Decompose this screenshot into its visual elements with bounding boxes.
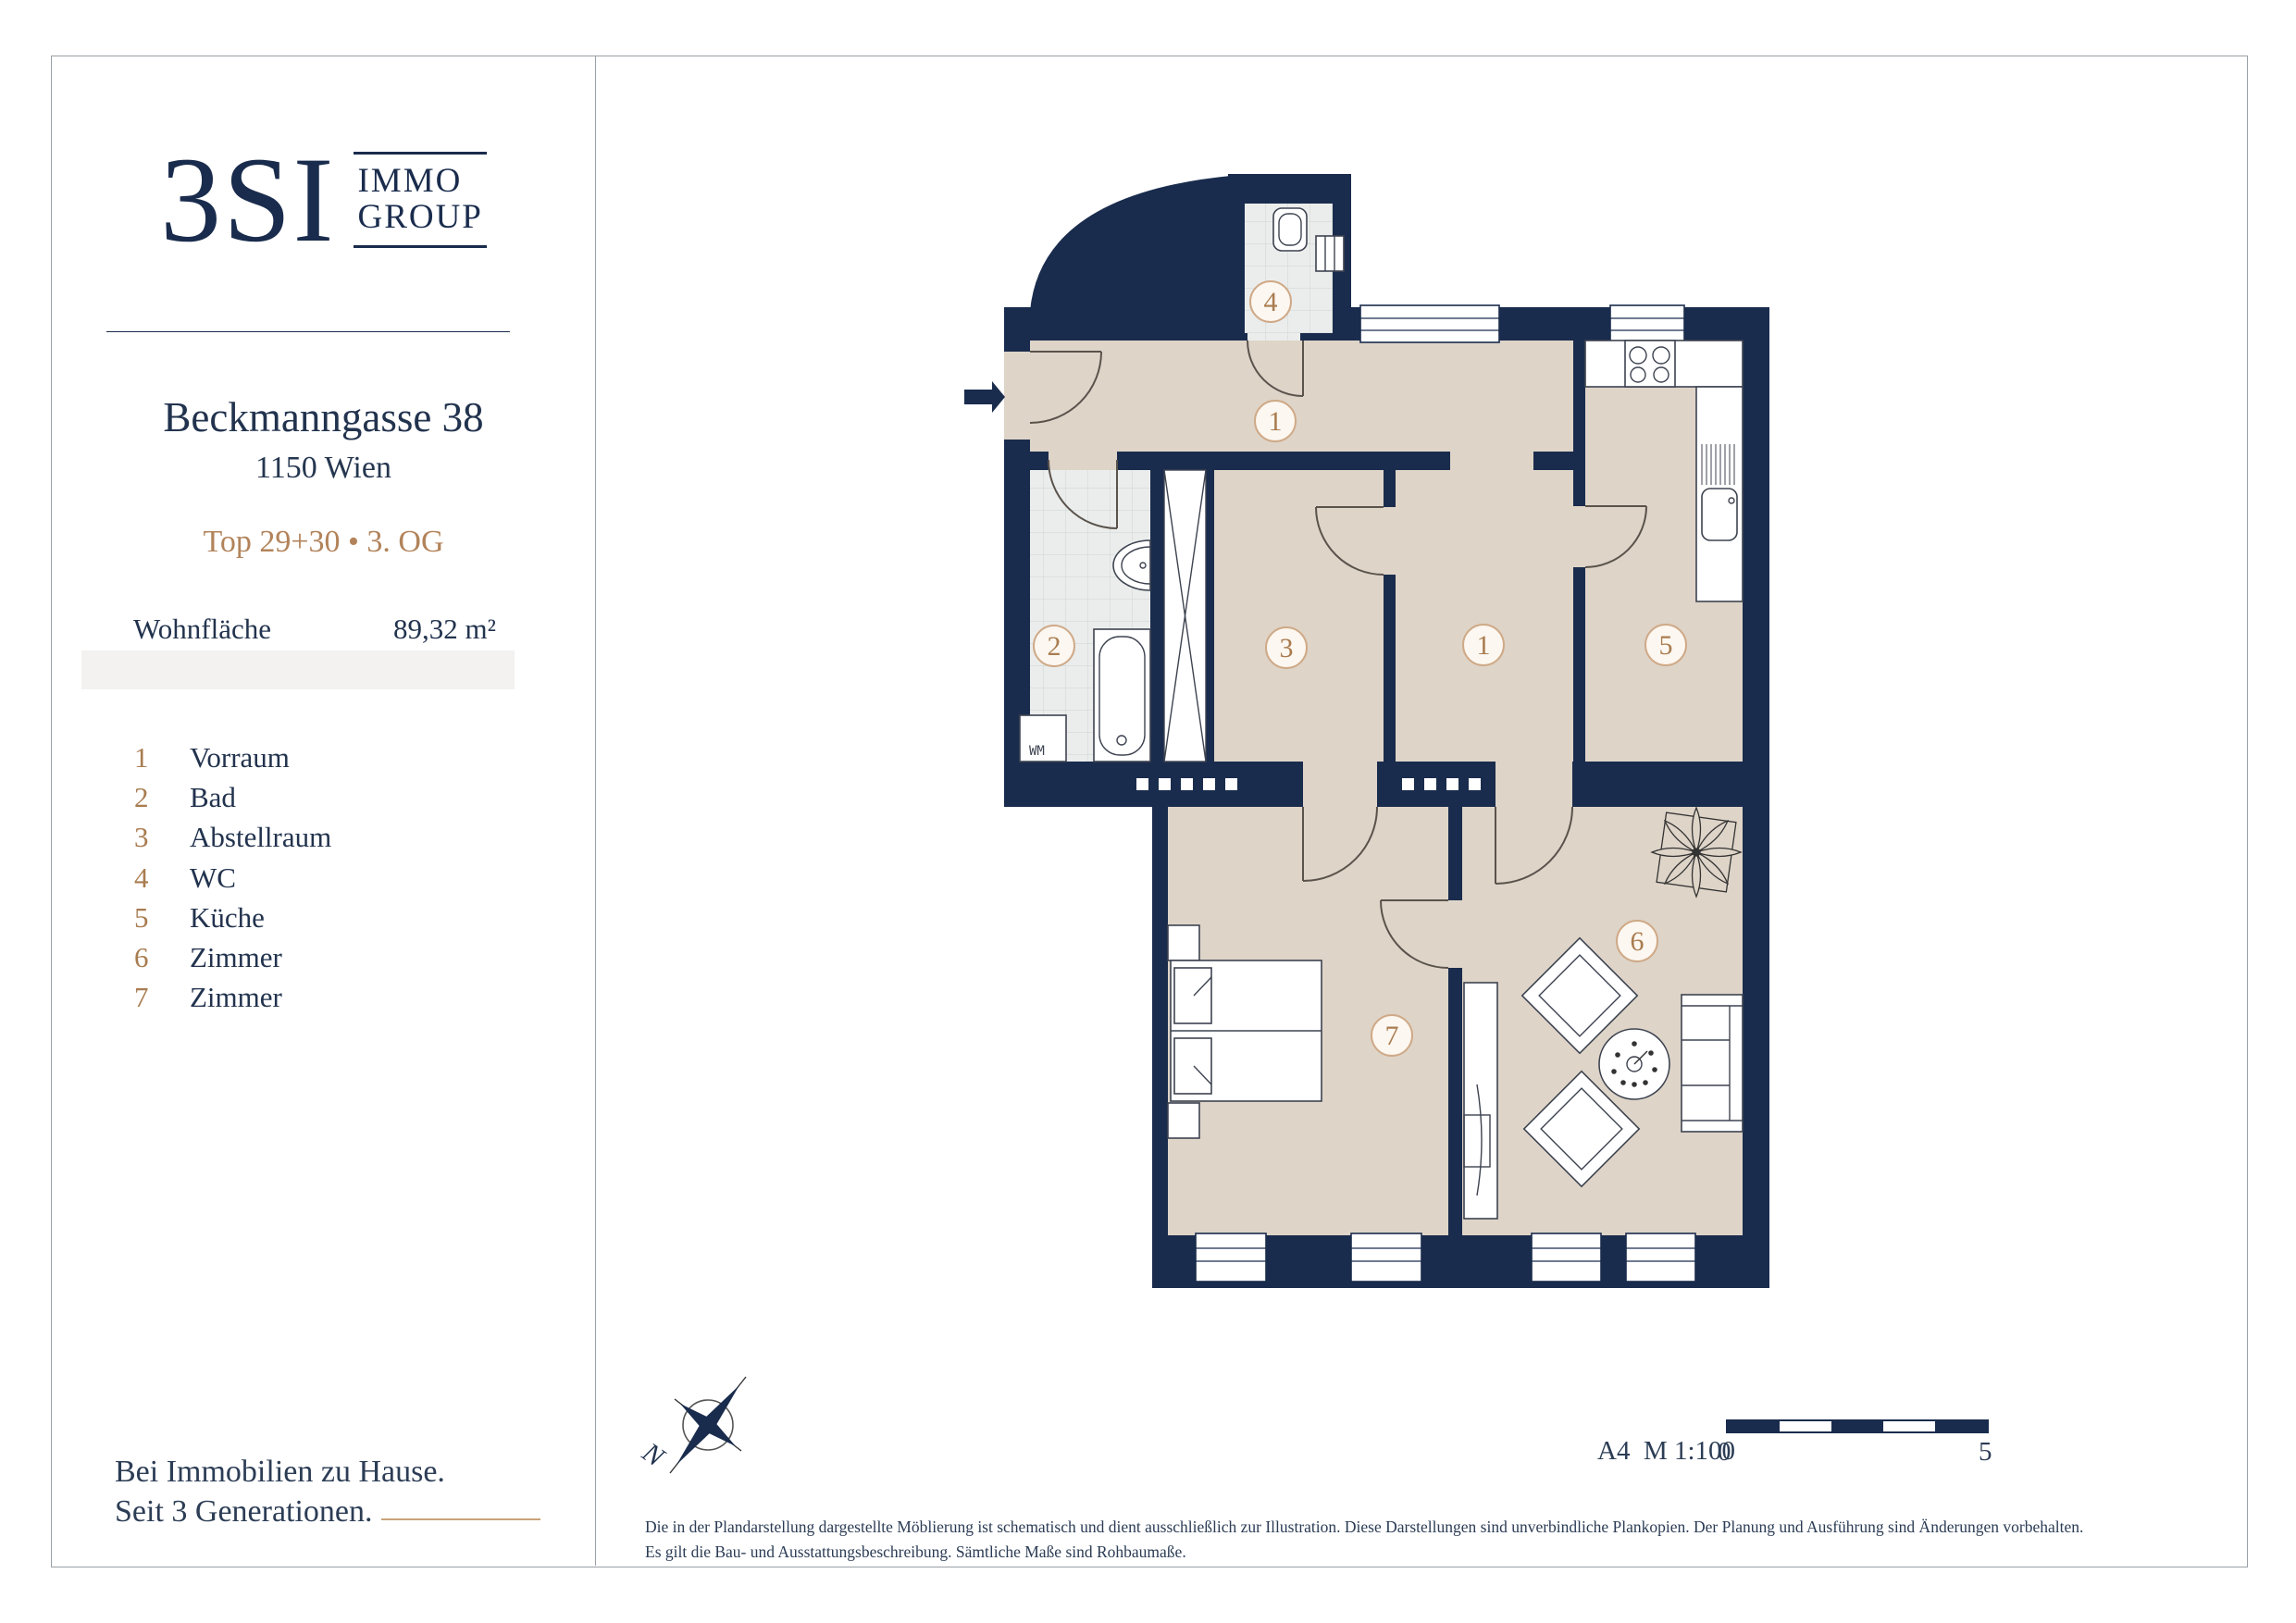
plant: [1652, 808, 1741, 897]
legend-label: Bad: [190, 781, 236, 814]
legend-row-zimmer7: 7 Zimmer: [134, 978, 331, 1018]
wc-shaft: [1316, 236, 1344, 271]
floor-plan: WM: [953, 162, 1805, 1309]
legend-row-abstellraum: 3 Abstellraum: [134, 818, 331, 858]
window-top-kitchen: [1610, 305, 1684, 342]
panel-divider: [595, 56, 596, 1566]
room-label-abstellraum: 3: [1280, 633, 1294, 663]
legend-num: 1: [134, 741, 190, 774]
legend-num: 2: [134, 781, 190, 814]
compass-icon: N: [639, 1358, 787, 1497]
legend-row-zimmer6: 6 Zimmer: [134, 937, 331, 977]
scale-segment: [1883, 1421, 1935, 1431]
nightstand: [1168, 925, 1199, 960]
window-bottom-4: [1626, 1233, 1695, 1282]
tagline-accent-line: [381, 1518, 540, 1520]
room-label-vorraum-a: 1: [1269, 406, 1283, 437]
legend-num: 6: [134, 941, 190, 974]
logo-immo: IMMO: [357, 164, 482, 200]
nightstand: [1168, 1103, 1199, 1138]
area-row-band: [81, 650, 515, 689]
floor-vorraum-lower: [1396, 470, 1573, 762]
legend-num: 7: [134, 981, 190, 1014]
scale-segment: [1831, 1421, 1883, 1431]
window-top-corridor: [1360, 305, 1499, 342]
scale-segment: [1728, 1421, 1780, 1431]
room-label-kueche: 5: [1659, 630, 1673, 661]
shaft-closet: [1164, 470, 1206, 762]
room-label-zimmer6: 6: [1631, 926, 1644, 957]
legend-num: 3: [134, 821, 190, 854]
scale-segment: [1780, 1421, 1831, 1431]
room-legend: 1 Vorraum 2 Bad 3 Abstellraum 4 WC 5 Küc…: [134, 737, 331, 1018]
floorplan-document: 3SI IMMO GROUP Beckmanngasse 38 1150 Wie…: [0, 0, 2296, 1623]
disclaimer-text: Die in der Plandarstellung dargestellte …: [645, 1515, 2093, 1565]
property-city: 1150 Wien: [52, 451, 595, 486]
kitchen-sink: [1702, 489, 1737, 540]
floor-abstellraum: [1214, 470, 1384, 762]
compass-north-label: N: [639, 1436, 671, 1473]
sideboard: [1464, 983, 1497, 1219]
legend-num: 5: [134, 901, 190, 935]
legend-row-vorraum: 1 Vorraum: [134, 737, 331, 777]
legend-num: 4: [134, 861, 190, 895]
room-label-zimmer7: 7: [1385, 1021, 1399, 1051]
sheet-format-scale: A4 M 1:100: [1597, 1436, 1735, 1467]
entrance-arrow-icon: [964, 381, 1005, 413]
brand-logo: 3SI IMMO GROUP: [52, 139, 595, 261]
scale-segment: [1935, 1421, 1987, 1431]
legend-label: Küche: [190, 901, 265, 935]
sofa: [1682, 995, 1743, 1132]
property-address: Beckmanngasse 38: [52, 393, 595, 441]
pillow: [1174, 1038, 1211, 1094]
legend-row-bad: 2 Bad: [134, 777, 331, 817]
logo-text: 3SI: [160, 139, 335, 261]
legend-label: Vorraum: [190, 741, 290, 774]
logo-subtext: IMMO GROUP: [354, 152, 486, 248]
unit-floor-line: Top 29+30 • 3. OG: [52, 525, 595, 560]
washing-machine-label: WM: [1029, 744, 1045, 759]
living-area-row: Wohnfläche 89,32 m²: [133, 613, 503, 646]
room-label-wc: 4: [1264, 287, 1278, 317]
window-bottom-3: [1532, 1233, 1601, 1282]
legend-label: WC: [190, 861, 236, 895]
pillow: [1174, 968, 1211, 1023]
legend-label: Abstellraum: [190, 821, 331, 854]
area-label: Wohnfläche: [133, 613, 271, 645]
legend-label: Zimmer: [190, 941, 282, 974]
legend-label: Zimmer: [190, 981, 282, 1014]
entrance-gap: [1004, 352, 1030, 440]
brand-tagline-2: Seit 3 Generationen.: [115, 1494, 373, 1530]
scale-start-label: 0: [1718, 1437, 1731, 1468]
window-bottom-1: [1196, 1233, 1266, 1282]
scale-end-label: 5: [1979, 1437, 1992, 1468]
legend-row-kueche: 5 Küche: [134, 898, 331, 937]
scale-bar: [1726, 1419, 1989, 1433]
logo-group: GROUP: [357, 200, 482, 236]
area-value: 89,32 m²: [393, 613, 496, 646]
brand-tagline-1: Bei Immobilien zu Hause.: [115, 1455, 445, 1490]
window-bottom-2: [1351, 1233, 1421, 1282]
room-label-bad: 2: [1048, 631, 1061, 662]
curved-outer-wall: [1030, 176, 1231, 315]
legend-row-wc: 4 WC: [134, 858, 331, 898]
logo-divider-line: [106, 331, 510, 332]
bathtub: [1094, 629, 1150, 762]
room-label-vorraum-b: 1: [1477, 630, 1491, 661]
